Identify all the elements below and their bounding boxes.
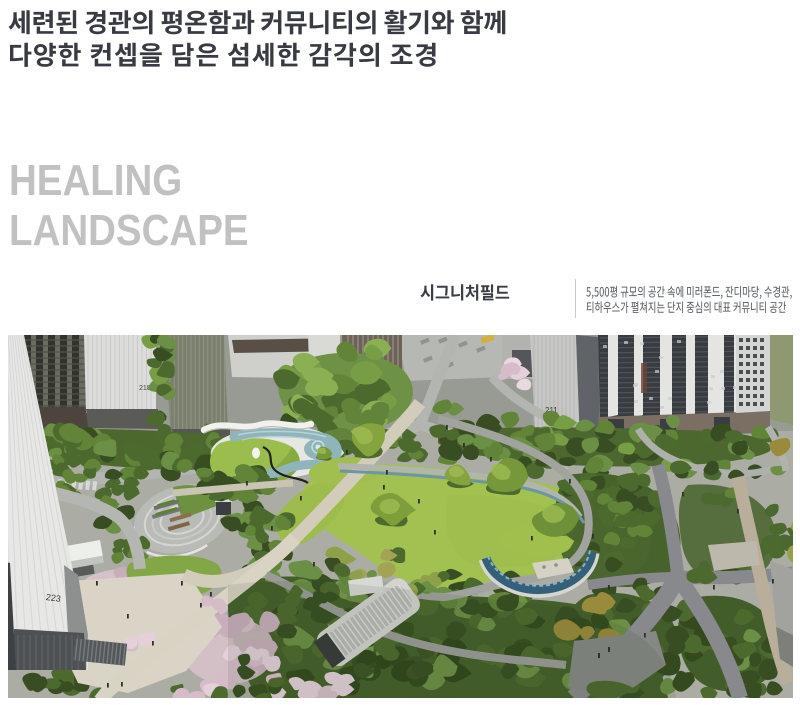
svg-text:223: 223 xyxy=(45,592,61,604)
